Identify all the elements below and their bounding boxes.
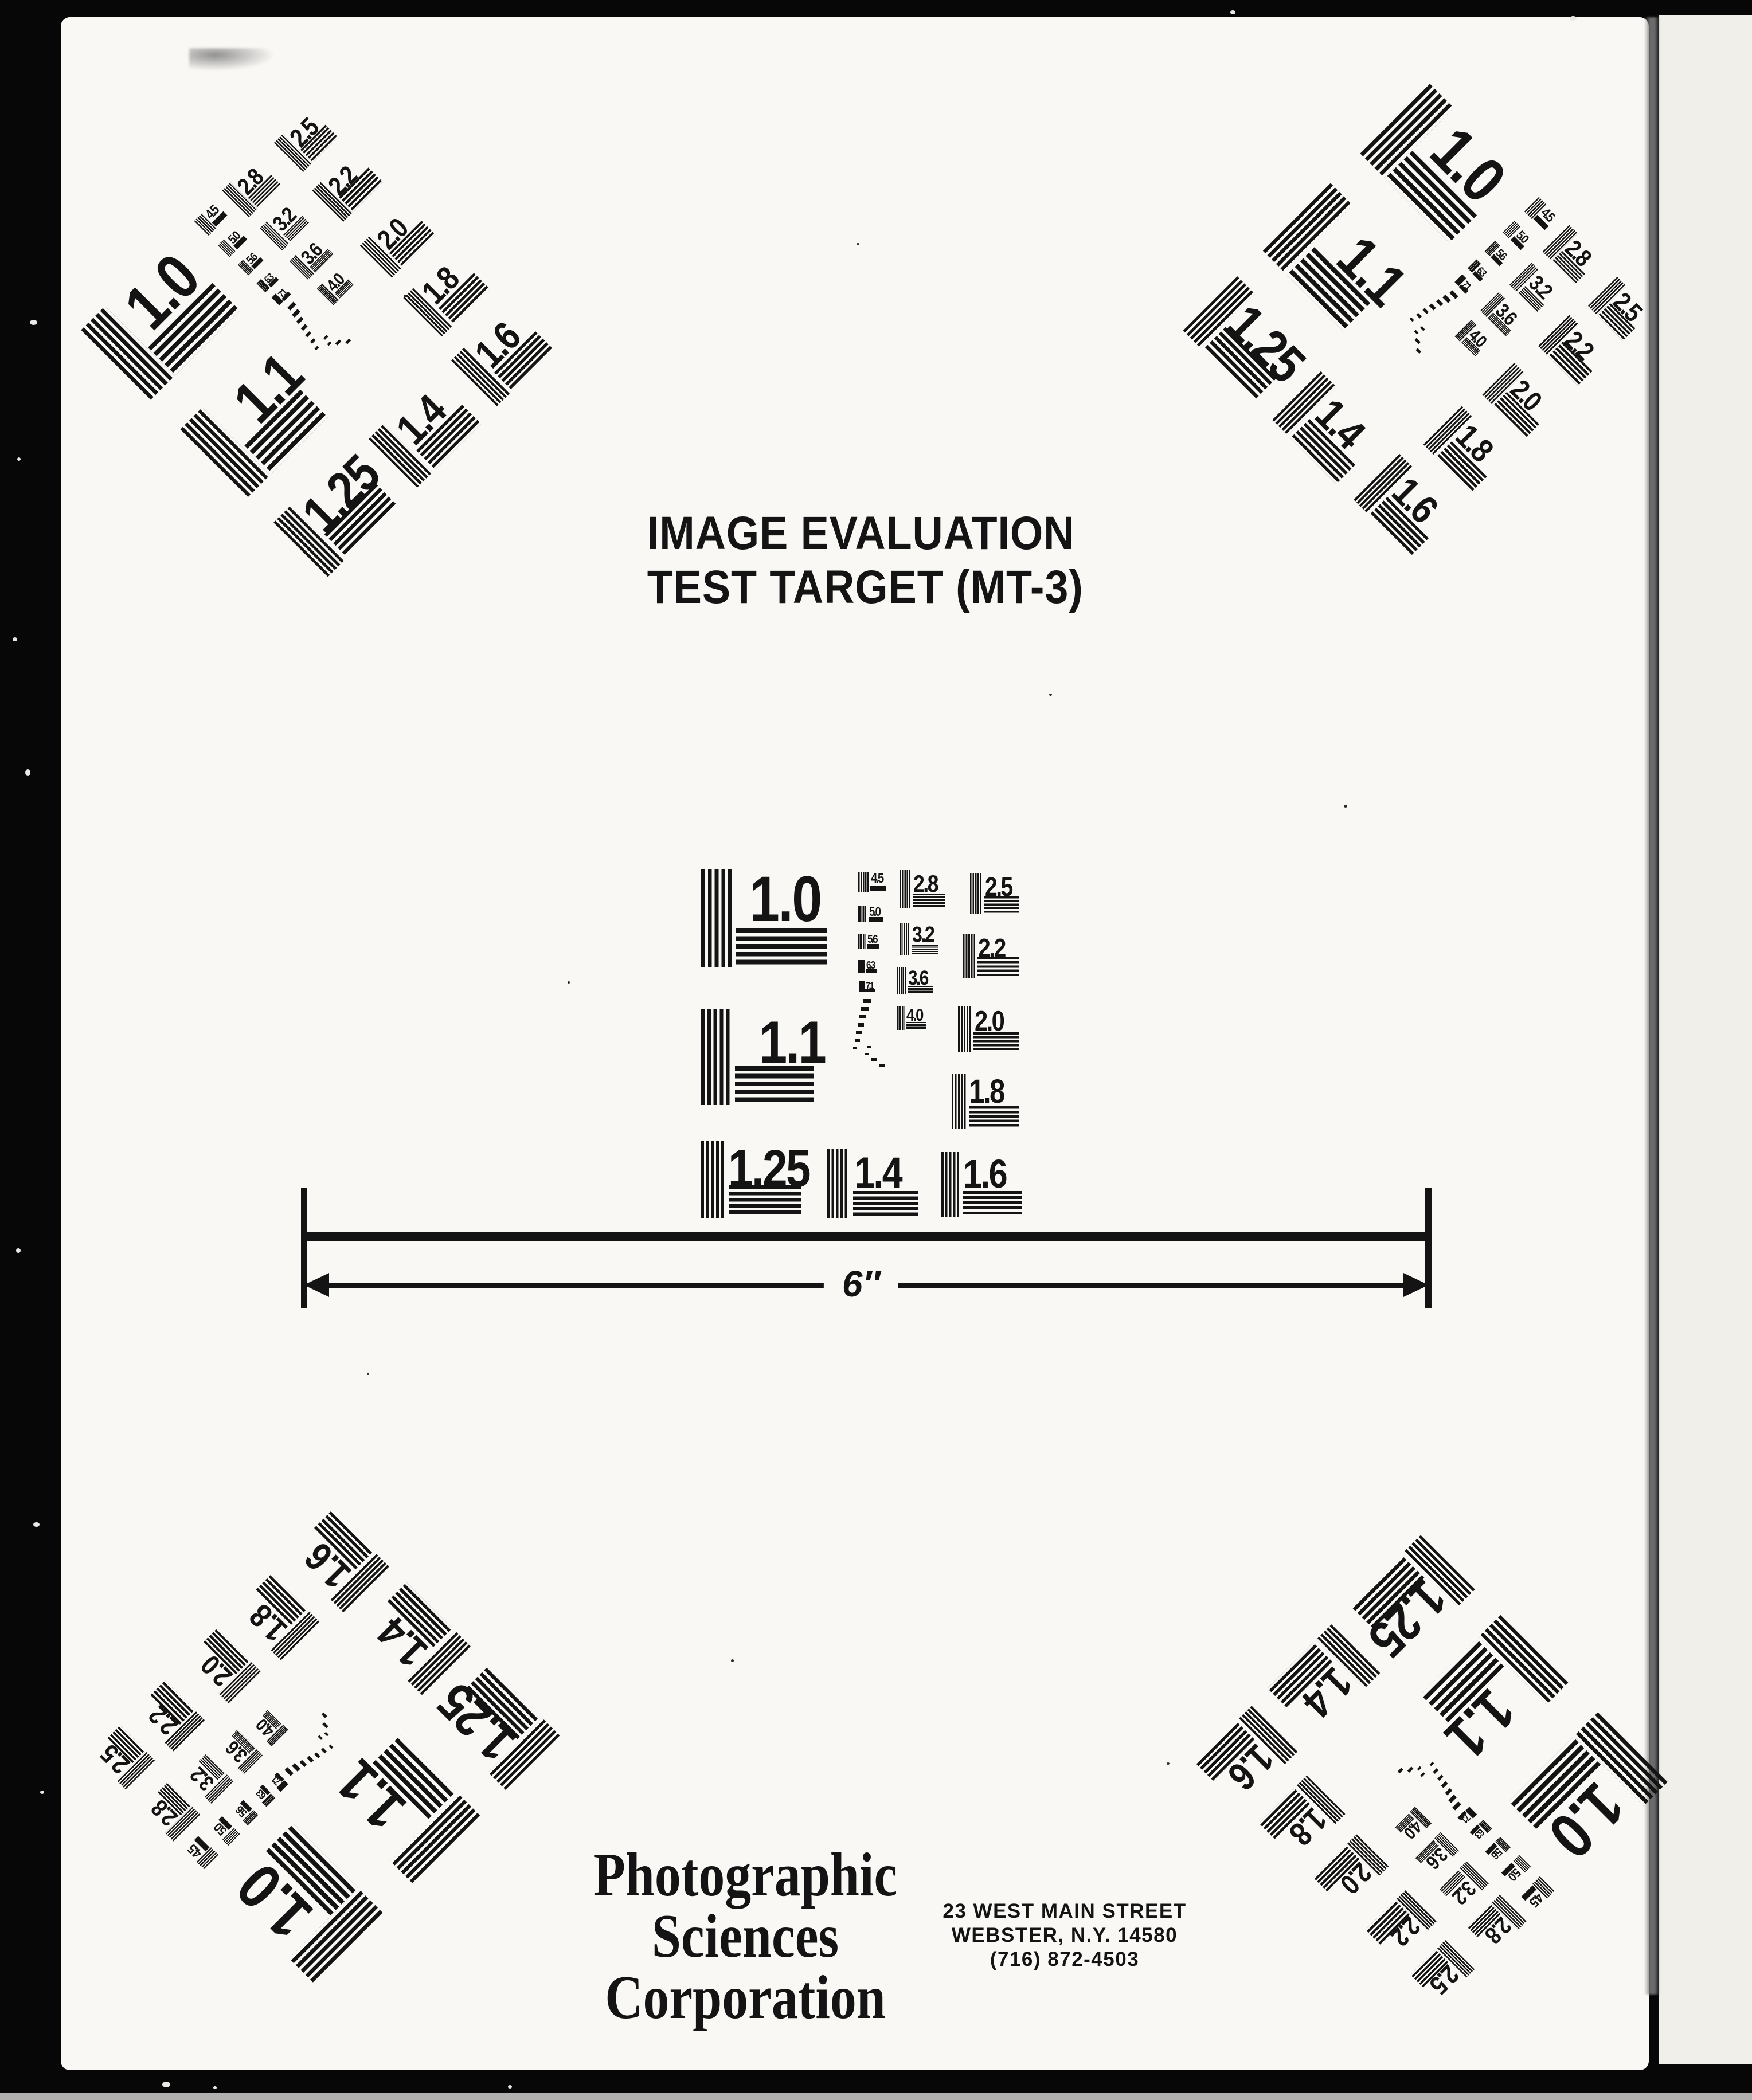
micro-pattern-mark bbox=[1417, 1766, 1422, 1771]
micro-pattern-mark bbox=[858, 1023, 864, 1027]
scanned-test-target-page: IMAGE EVALUATION TEST TARGET (MT-3) 1.01… bbox=[0, 0, 1752, 2100]
ruler-left-arrowhead-icon bbox=[304, 1273, 329, 1297]
dust-speck bbox=[33, 1522, 40, 1527]
dust-speck bbox=[367, 1373, 369, 1375]
address-line-1: 23 WEST MAIN STREET bbox=[940, 1899, 1189, 1923]
target-number-label: 2.8 bbox=[913, 872, 937, 896]
micro-pattern-mark bbox=[300, 1760, 307, 1768]
micro-pattern-mark bbox=[321, 1748, 327, 1753]
micro-pattern-mark bbox=[292, 1763, 300, 1772]
target-number-label: 5.0 bbox=[869, 906, 879, 918]
micro-pattern-mark bbox=[324, 1732, 329, 1737]
target-number-label: 3.6 bbox=[908, 968, 928, 988]
target-number-label: 1.0 bbox=[749, 867, 821, 931]
micro-pattern-mark bbox=[1430, 1762, 1434, 1766]
target-number-label: 5.6 bbox=[867, 934, 877, 945]
publisher-name-line-2: Sciences bbox=[580, 1906, 911, 1967]
micro-pattern-mark bbox=[1398, 1768, 1403, 1773]
micro-pattern-mark bbox=[855, 1039, 860, 1042]
title-line-2: TEST TARGET (MT-3) bbox=[647, 561, 1068, 614]
dust-speck bbox=[25, 769, 30, 776]
micro-pattern-mark bbox=[1410, 318, 1414, 322]
bar-group-vertical-bars bbox=[858, 960, 865, 973]
dust-speck bbox=[1230, 10, 1235, 14]
micro-pattern-mark bbox=[315, 346, 319, 350]
micro-pattern-mark bbox=[284, 1767, 294, 1776]
page-title: IMAGE EVALUATION TEST TARGET (MT-3) bbox=[647, 507, 1068, 614]
target-number-label: 1.25 bbox=[728, 1142, 809, 1195]
bar-group-vertical-bars bbox=[897, 1006, 905, 1030]
title-line-1: IMAGE EVALUATION bbox=[647, 507, 1068, 561]
target-number-label: 1.4 bbox=[854, 1151, 901, 1195]
bar-group-vertical-bars bbox=[859, 981, 865, 992]
dust-speck bbox=[30, 320, 37, 325]
target-number-label: 4.0 bbox=[906, 1007, 922, 1024]
micro-pattern-mark bbox=[1449, 290, 1458, 299]
dust-speck bbox=[17, 457, 21, 461]
dust-speck bbox=[1167, 1762, 1170, 1765]
address-line-3: (716) 872-4503 bbox=[940, 1948, 1189, 1972]
micro-pattern-mark bbox=[327, 342, 332, 346]
micro-pattern-mark bbox=[1429, 304, 1436, 311]
publisher-address: 23 WEST MAIN STREET WEBSTER, N.Y. 14580 … bbox=[940, 1899, 1189, 1972]
micro-pattern-mark bbox=[318, 1735, 322, 1739]
bar-group-vertical-bars bbox=[900, 870, 912, 908]
target-number-label: 1.6 bbox=[963, 1154, 1006, 1194]
micro-pattern-mark bbox=[879, 1064, 885, 1067]
bar-group-vertical-bars bbox=[952, 1074, 967, 1129]
micro-pattern-mark bbox=[871, 1058, 877, 1061]
micro-pattern-mark bbox=[287, 301, 296, 311]
micro-pattern-mark bbox=[853, 1047, 857, 1049]
micro-pattern-mark bbox=[314, 1752, 320, 1758]
publisher-name: Photographic Sciences Corporation bbox=[580, 1844, 911, 2028]
resolution-target-center: 1.01.11.251.41.62.52.22.01.82.83.23.64.0… bbox=[695, 863, 1027, 1218]
scan-bottom-edge bbox=[0, 2093, 1752, 2100]
dust-speck bbox=[13, 637, 17, 641]
micro-pattern-mark bbox=[1436, 299, 1444, 307]
dust-speck bbox=[213, 2086, 217, 2089]
micro-pattern-mark bbox=[1441, 1781, 1448, 1788]
target-number-label: 2.2 bbox=[978, 935, 1005, 961]
micro-pattern-mark bbox=[292, 309, 300, 318]
bar-group-vertical-bars bbox=[701, 1141, 726, 1218]
bar-group-vertical-bars bbox=[963, 934, 976, 978]
micro-pattern-mark bbox=[328, 1745, 333, 1749]
target-number-label: 1.8 bbox=[969, 1075, 1004, 1108]
micro-pattern-mark bbox=[345, 339, 351, 344]
micro-pattern-mark bbox=[867, 1046, 871, 1048]
micro-pattern-mark bbox=[1414, 330, 1419, 335]
dust-speck bbox=[404, 295, 407, 297]
publisher-name-line-3: Corporation bbox=[580, 1967, 911, 2028]
micro-pattern-mark bbox=[859, 1015, 866, 1018]
micro-pattern-mark bbox=[310, 338, 316, 344]
micro-pattern-mark bbox=[1437, 1774, 1444, 1781]
target-number-label: 2.0 bbox=[975, 1008, 1003, 1036]
bar-group-vertical-bars bbox=[701, 1009, 732, 1105]
micro-pattern-mark bbox=[322, 1722, 328, 1729]
target-number-label: 6.3 bbox=[866, 960, 874, 970]
micro-pattern-mark bbox=[1433, 1768, 1438, 1774]
bar-group-vertical-bars bbox=[858, 906, 867, 922]
bar-group-vertical-bars bbox=[970, 873, 983, 914]
target-number-label: 2.5 bbox=[985, 873, 1012, 900]
micro-pattern-mark bbox=[296, 317, 304, 324]
bar-group-vertical-bars bbox=[958, 1006, 972, 1052]
dust-speck bbox=[508, 2085, 512, 2089]
bar-group-vertical-bars bbox=[897, 967, 906, 994]
micro-pattern-mark bbox=[1422, 308, 1429, 314]
dust-speck bbox=[731, 1659, 734, 1662]
adjacent-page-edge bbox=[1659, 15, 1752, 2064]
micro-pattern-mark bbox=[1445, 1788, 1453, 1796]
bar-group-horizontal-bars bbox=[870, 886, 886, 891]
target-number-label: 1.1 bbox=[759, 1013, 825, 1072]
micro-pattern-mark bbox=[1415, 348, 1421, 354]
ruler-right-arrowhead-icon bbox=[1403, 1273, 1429, 1297]
bar-group-vertical-bars bbox=[827, 1149, 849, 1218]
micro-pattern-mark bbox=[861, 1007, 869, 1011]
micro-pattern-mark bbox=[1420, 326, 1425, 331]
micro-pattern-mark bbox=[863, 999, 871, 1003]
dust-speck bbox=[162, 2082, 170, 2087]
publisher-name-line-1: Photographic bbox=[580, 1844, 911, 1906]
micro-pattern-mark bbox=[1452, 1801, 1461, 1811]
micro-pattern-mark bbox=[865, 1053, 869, 1055]
micro-pattern-mark bbox=[1407, 1766, 1414, 1773]
bar-group-vertical-bars bbox=[941, 1152, 961, 1217]
address-line-2: WEBSTER, N.Y. 14580 bbox=[940, 1923, 1189, 1948]
dust-speck bbox=[40, 1791, 44, 1794]
dust-speck bbox=[568, 981, 570, 984]
bar-group-vertical-bars bbox=[858, 934, 866, 949]
bar-group-vertical-bars bbox=[701, 869, 735, 967]
target-number-label: 7.1 bbox=[866, 981, 873, 990]
ruler-top-bar bbox=[301, 1232, 1432, 1241]
micro-pattern-mark bbox=[856, 1031, 862, 1034]
micro-pattern-mark bbox=[305, 331, 311, 338]
micro-pattern-mark bbox=[322, 1713, 327, 1718]
ruler-length-label: 6″ bbox=[824, 1263, 898, 1305]
target-number-label: 4.5 bbox=[871, 872, 883, 886]
dust-speck bbox=[16, 1248, 21, 1253]
dust-speck bbox=[1344, 805, 1347, 808]
micro-pattern-mark bbox=[307, 1756, 314, 1762]
bar-group-vertical-bars bbox=[858, 872, 870, 892]
micro-pattern-mark bbox=[335, 339, 342, 346]
bar-group-vertical-bars bbox=[900, 923, 910, 955]
dust-speck bbox=[1049, 694, 1052, 696]
micro-pattern-mark bbox=[1448, 1795, 1457, 1803]
scan-smudge bbox=[189, 48, 275, 71]
micro-pattern-mark bbox=[301, 324, 308, 331]
micro-pattern-mark bbox=[1414, 338, 1421, 344]
dust-speck bbox=[1570, 16, 1577, 21]
micro-pattern-mark bbox=[323, 335, 328, 339]
micro-pattern-mark bbox=[1416, 313, 1422, 319]
target-number-label: 3.2 bbox=[912, 924, 933, 946]
dust-speck bbox=[857, 243, 859, 245]
micro-pattern-mark bbox=[1442, 295, 1451, 303]
micro-pattern-mark bbox=[1420, 1772, 1425, 1777]
